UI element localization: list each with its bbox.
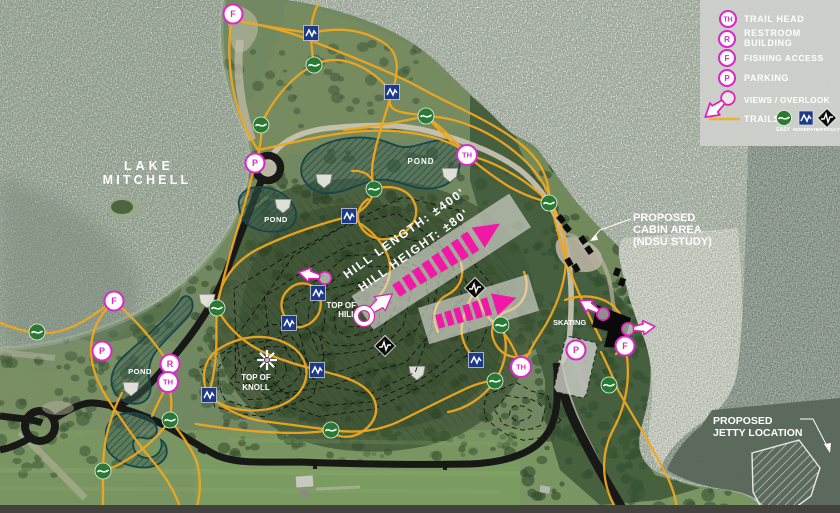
svg-text:EASY: EASY [776, 127, 790, 133]
svg-text:R: R [724, 35, 730, 44]
svg-text:TRAILS: TRAILS [744, 114, 780, 124]
svg-text:JETTY LOCATION: JETTY LOCATION [713, 427, 802, 439]
svg-text:P: P [252, 158, 258, 168]
svg-text:SKATING: SKATING [553, 318, 586, 327]
svg-text:TOP OF: TOP OF [241, 373, 271, 382]
svg-text:RESTROOM: RESTROOM [744, 28, 801, 38]
svg-text:(NDSU STUDY): (NDSU STUDY) [633, 236, 712, 248]
svg-text:KNOLL: KNOLL [242, 383, 270, 392]
svg-text:F: F [725, 54, 730, 63]
svg-text:PROPOSED: PROPOSED [713, 415, 773, 427]
svg-text:LAKE: LAKE [124, 159, 174, 173]
svg-text:TH: TH [516, 363, 526, 372]
svg-text:F: F [111, 296, 117, 306]
svg-text:TH: TH [163, 378, 173, 387]
svg-text:F: F [622, 341, 628, 351]
svg-text:FISHING ACCESS: FISHING ACCESS [744, 53, 824, 63]
svg-text:BUILDING: BUILDING [744, 38, 792, 48]
svg-text:P: P [573, 345, 579, 355]
svg-text:DIFFICULT: DIFFICULT [816, 127, 840, 132]
svg-text:P: P [99, 346, 105, 356]
svg-text:TH: TH [723, 17, 732, 24]
svg-text:MITCHELL: MITCHELL [103, 173, 192, 187]
svg-text:POND: POND [264, 215, 288, 224]
svg-text:POND: POND [128, 367, 152, 376]
svg-text:CABIN AREA: CABIN AREA [633, 224, 702, 236]
svg-text:TRAIL HEAD: TRAIL HEAD [744, 14, 804, 24]
svg-text:P: P [724, 74, 730, 83]
svg-text:VIEWS / OVERLOOK: VIEWS / OVERLOOK [744, 95, 830, 105]
svg-text:PROPOSED: PROPOSED [633, 212, 695, 224]
svg-text:R: R [167, 359, 174, 369]
svg-text:MODERATE: MODERATE [793, 127, 819, 132]
svg-text:TH: TH [462, 151, 472, 160]
svg-text:POND: POND [407, 157, 434, 166]
svg-text:TOP OF: TOP OF [327, 301, 357, 310]
svg-text:F: F [230, 9, 236, 19]
svg-text:PARKING: PARKING [744, 73, 789, 83]
